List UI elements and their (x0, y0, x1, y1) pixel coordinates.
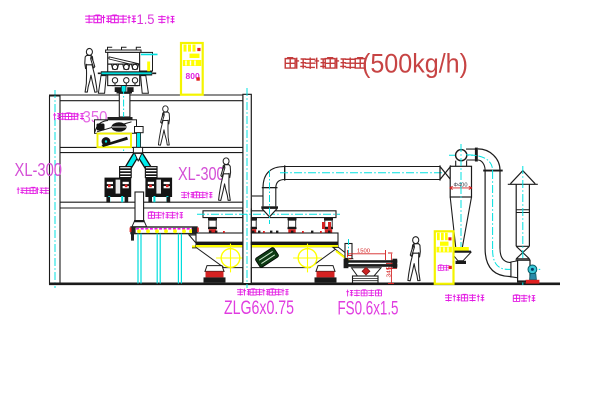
svg-text:FS0.6x1.5: FS0.6x1.5 (338, 299, 399, 320)
svg-text:1.5: 1.5 (137, 12, 155, 27)
svg-text:XL-300: XL-300 (178, 164, 225, 184)
svg-text:345: 345 (386, 267, 392, 278)
svg-text:ZLG6x0.75: ZLG6x0.75 (224, 298, 294, 319)
svg-text:1500: 1500 (357, 249, 370, 255)
svg-text:(500kg/h): (500kg/h) (362, 49, 468, 79)
svg-text:XL-300: XL-300 (15, 159, 63, 180)
